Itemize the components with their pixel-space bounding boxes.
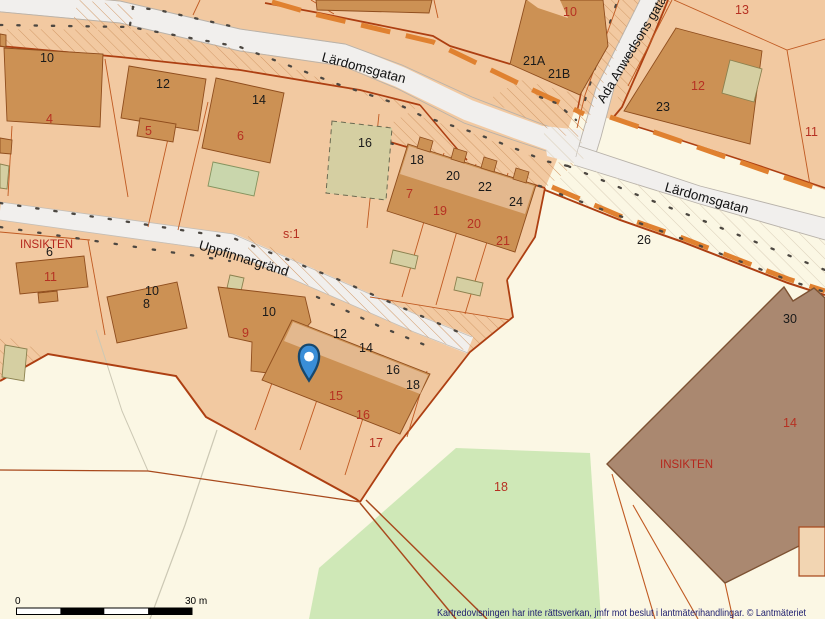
svg-text:12: 12 [156,77,170,91]
svg-text:21A: 21A [523,54,546,68]
svg-text:10: 10 [262,305,276,319]
svg-text:21B: 21B [548,67,570,81]
svg-text:11: 11 [805,125,818,139]
svg-text:21: 21 [496,234,510,248]
svg-text:9: 9 [242,326,249,340]
svg-text:8: 8 [143,297,150,311]
svg-text:18: 18 [410,153,424,167]
svg-text:12: 12 [691,79,705,93]
svg-text:19: 19 [433,204,447,218]
svg-text:24: 24 [509,195,523,209]
svg-text:10: 10 [563,5,577,19]
svg-text:s:1: s:1 [283,227,300,241]
svg-text:5: 5 [145,124,152,138]
svg-text:11: 11 [44,270,57,284]
svg-text:INSIKTEN: INSIKTEN [660,459,713,471]
svg-text:15: 15 [329,389,343,403]
svg-text:0: 0 [15,596,21,607]
svg-text:10: 10 [40,51,54,65]
svg-text:7: 7 [406,187,413,201]
svg-text:16: 16 [386,363,400,377]
svg-text:18: 18 [494,480,508,494]
svg-text:20: 20 [467,217,481,231]
svg-text:6: 6 [46,245,53,259]
svg-text:30: 30 [783,312,797,326]
svg-text:6: 6 [237,129,244,143]
svg-text:4: 4 [46,112,53,126]
svg-text:13: 13 [735,3,749,17]
svg-text:17: 17 [369,436,383,450]
svg-text:20: 20 [446,169,460,183]
svg-text:26: 26 [637,233,651,247]
svg-text:30 m: 30 m [185,596,207,607]
svg-text:18: 18 [406,378,420,392]
svg-text:23: 23 [656,100,670,114]
svg-text:14: 14 [359,341,373,355]
svg-text:22: 22 [478,180,492,194]
svg-text:16: 16 [356,408,370,422]
svg-text:16: 16 [358,136,372,150]
svg-text:14: 14 [783,416,797,430]
svg-text:14: 14 [252,93,266,107]
svg-text:10: 10 [145,284,159,298]
svg-text:Kartredovisningen har inte rät: Kartredovisningen har inte rättsverkan, … [437,607,806,619]
svg-text:12: 12 [333,327,347,341]
